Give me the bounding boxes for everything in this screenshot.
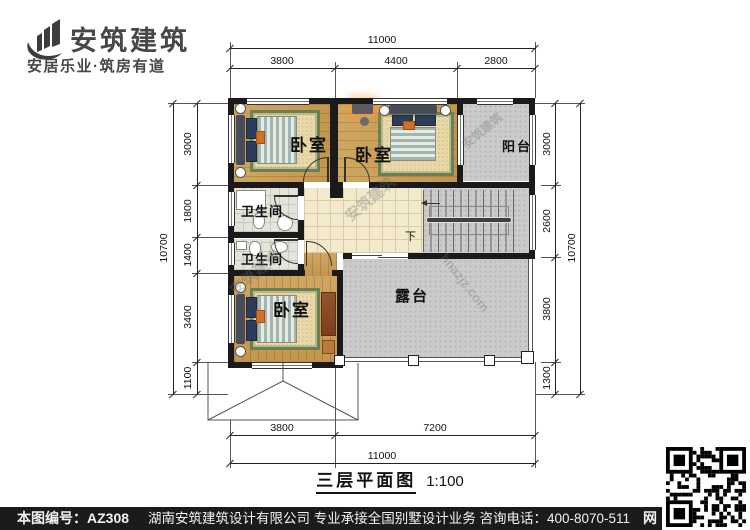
drawing-scale: 1:100 xyxy=(426,473,464,490)
window xyxy=(373,98,447,105)
drawing-sheet: 安筑建筑 安居乐业·筑房有道 xyxy=(0,0,750,530)
qr-code xyxy=(666,447,746,527)
railing xyxy=(343,361,527,362)
nightstand xyxy=(235,282,246,293)
window xyxy=(228,295,235,343)
nightstand xyxy=(440,105,451,116)
dim-text: 7200 xyxy=(415,422,455,434)
room-label-bathroom2: 卫生间 xyxy=(234,249,290,268)
railing-post xyxy=(334,355,345,366)
dim-text: 2600 xyxy=(541,201,553,241)
wall xyxy=(298,264,304,276)
ext-line xyxy=(535,362,536,468)
dim-text: 10700 xyxy=(566,228,578,268)
railing xyxy=(528,259,529,353)
wall xyxy=(228,232,304,238)
dim-text: 3000 xyxy=(541,124,553,164)
dim-text: 1400 xyxy=(182,235,194,275)
wall xyxy=(343,253,352,259)
window xyxy=(477,98,513,105)
dim-text: 3800 xyxy=(262,55,302,67)
dim-text: 1100 xyxy=(182,358,194,398)
qr-code-panel xyxy=(662,443,750,530)
window xyxy=(247,98,309,105)
desk-chair xyxy=(360,117,369,126)
dim-text: 3000 xyxy=(182,124,194,164)
stair-direction-line xyxy=(426,203,440,204)
wall xyxy=(408,253,535,259)
ext-line xyxy=(535,42,536,98)
wall xyxy=(337,270,343,368)
room-label-bedroom-bl: 卧室 xyxy=(267,296,317,321)
footer-bar: 本图编号：AZ308 湖南安筑建筑设计有限公司 专业承接全国别墅设计业务 咨询电… xyxy=(0,507,750,530)
window xyxy=(252,362,312,369)
railing-post xyxy=(408,355,419,366)
dim-line xyxy=(173,103,174,394)
dim-text: 3800 xyxy=(262,422,302,434)
room-label-bedroom-tm: 卧室 xyxy=(349,141,399,166)
sheet-number: 本图编号：AZ308 xyxy=(17,507,129,530)
railing xyxy=(532,259,533,353)
nightstand xyxy=(235,346,246,357)
sliding-door-panel xyxy=(352,255,382,256)
bed-headboard xyxy=(236,294,245,344)
dim-line xyxy=(230,463,536,464)
dim-text: 11000 xyxy=(362,450,402,462)
bed-pillow xyxy=(246,320,257,341)
bed-pillow xyxy=(246,141,257,162)
drawing-title-block: 三层平面图1:100 xyxy=(275,466,505,491)
stair-handrail xyxy=(427,218,511,222)
site-char: 网 xyxy=(643,507,657,530)
dim-text: 3400 xyxy=(182,297,194,337)
window xyxy=(529,195,536,250)
railing-post xyxy=(484,355,495,366)
wall xyxy=(298,220,304,240)
dim-line xyxy=(555,103,556,394)
ext-line xyxy=(541,257,561,258)
dim-text: 11000 xyxy=(362,34,402,46)
nightstand xyxy=(379,105,390,116)
dim-line xyxy=(230,435,536,436)
room-label-bedroom-tl: 卧室 xyxy=(284,131,334,156)
railing-post xyxy=(521,351,534,364)
bed-pillow-accent xyxy=(256,310,265,323)
bed-pillow xyxy=(415,115,436,126)
ext-line xyxy=(230,42,231,98)
dim-text: 10700 xyxy=(158,228,170,268)
wall xyxy=(330,182,343,198)
door-swing xyxy=(303,157,328,182)
drawing-title: 三层平面图 xyxy=(316,471,416,494)
dim-line xyxy=(580,103,581,394)
nightstand xyxy=(235,167,246,178)
bed-headboard xyxy=(389,105,437,114)
stair-landing xyxy=(517,188,529,253)
dim-line xyxy=(230,48,536,49)
company-tagline: 安居乐业·筑房有道 xyxy=(27,55,166,76)
dim-text: 1300 xyxy=(541,358,553,398)
dim-text: 2800 xyxy=(476,55,516,67)
ext-line xyxy=(335,368,336,468)
dim-text: 3800 xyxy=(541,289,553,329)
sliding-door-panel xyxy=(378,257,408,258)
room-label-bathroom1: 卫生间 xyxy=(234,201,290,220)
dim-line xyxy=(230,68,536,69)
bed-pillow-accent xyxy=(403,121,415,130)
wardrobe xyxy=(321,292,336,336)
room-label-balcony: 阳台 xyxy=(493,136,541,155)
bed-headboard xyxy=(236,115,245,165)
door-swing xyxy=(307,241,332,266)
company-info: 湖南安筑建筑设计有限公司 专业承接全国别墅设计业务 咨询电话：400-8070-… xyxy=(148,507,630,530)
stair-arrow-icon xyxy=(421,200,427,206)
bed-pillow-accent xyxy=(256,131,265,144)
dim-text: 1800 xyxy=(182,191,194,231)
wall xyxy=(228,270,305,276)
wall xyxy=(298,188,304,196)
window xyxy=(228,115,235,163)
dresser xyxy=(322,340,335,354)
stairs-down-label: 下 xyxy=(405,228,419,244)
room-label-terrace: 露台 xyxy=(386,285,438,306)
wall xyxy=(228,182,304,188)
nightstand xyxy=(235,103,246,114)
window xyxy=(457,115,464,165)
ext-line xyxy=(541,185,561,186)
dim-text: 4400 xyxy=(376,55,416,67)
company-name: 安筑建筑 xyxy=(70,19,190,58)
dim-line xyxy=(197,103,198,394)
terrace-floor xyxy=(343,259,529,357)
wall xyxy=(369,182,535,188)
railing xyxy=(343,357,527,358)
